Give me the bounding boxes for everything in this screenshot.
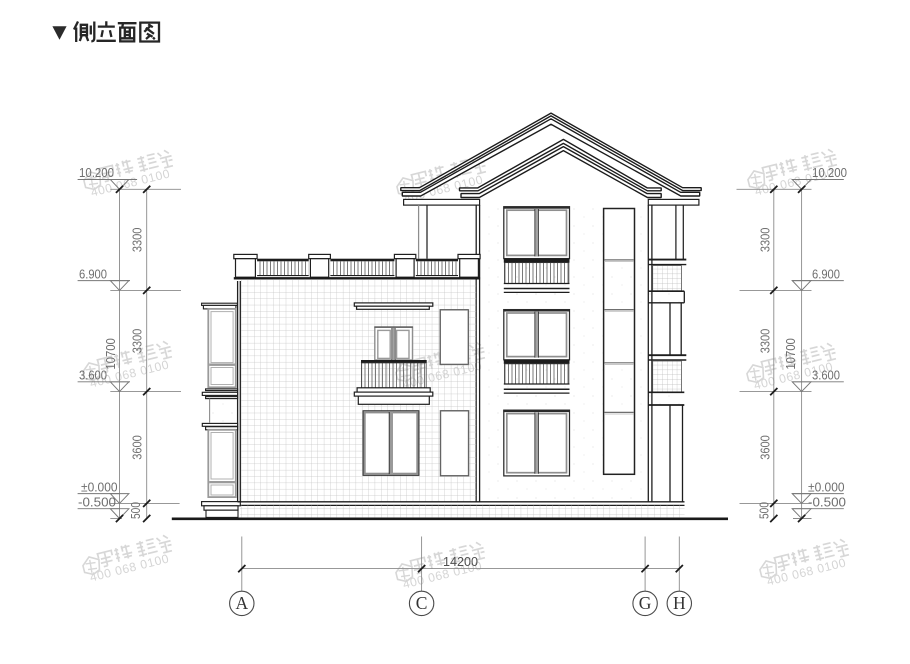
svg-text:H: H [673,593,686,613]
svg-text:3300: 3300 [129,329,144,354]
svg-text:500: 500 [128,502,143,519]
svg-text:3300: 3300 [758,228,773,253]
svg-text:-0.500: -0.500 [78,494,116,509]
svg-text:10.200: 10.200 [812,165,847,180]
svg-text:G: G [639,593,652,613]
svg-text:10700: 10700 [103,338,118,370]
svg-text:3300: 3300 [129,228,144,253]
svg-text:10.200: 10.200 [79,165,114,180]
svg-text:3600: 3600 [129,435,144,460]
svg-text:3600: 3600 [758,435,773,460]
svg-text:C: C [416,593,428,613]
svg-text:±0.000: ±0.000 [808,479,845,494]
svg-text:±0.000: ±0.000 [81,479,118,494]
svg-text:-0.500: -0.500 [808,494,846,509]
svg-text:6.900: 6.900 [79,266,107,281]
svg-text:A: A [235,593,248,613]
svg-text:10700: 10700 [783,338,798,370]
svg-text:500: 500 [757,502,772,519]
svg-text:3300: 3300 [758,329,773,354]
svg-text:6.900: 6.900 [812,266,840,281]
svg-text:14200: 14200 [443,555,478,569]
svg-text:3.600: 3.600 [812,368,840,383]
